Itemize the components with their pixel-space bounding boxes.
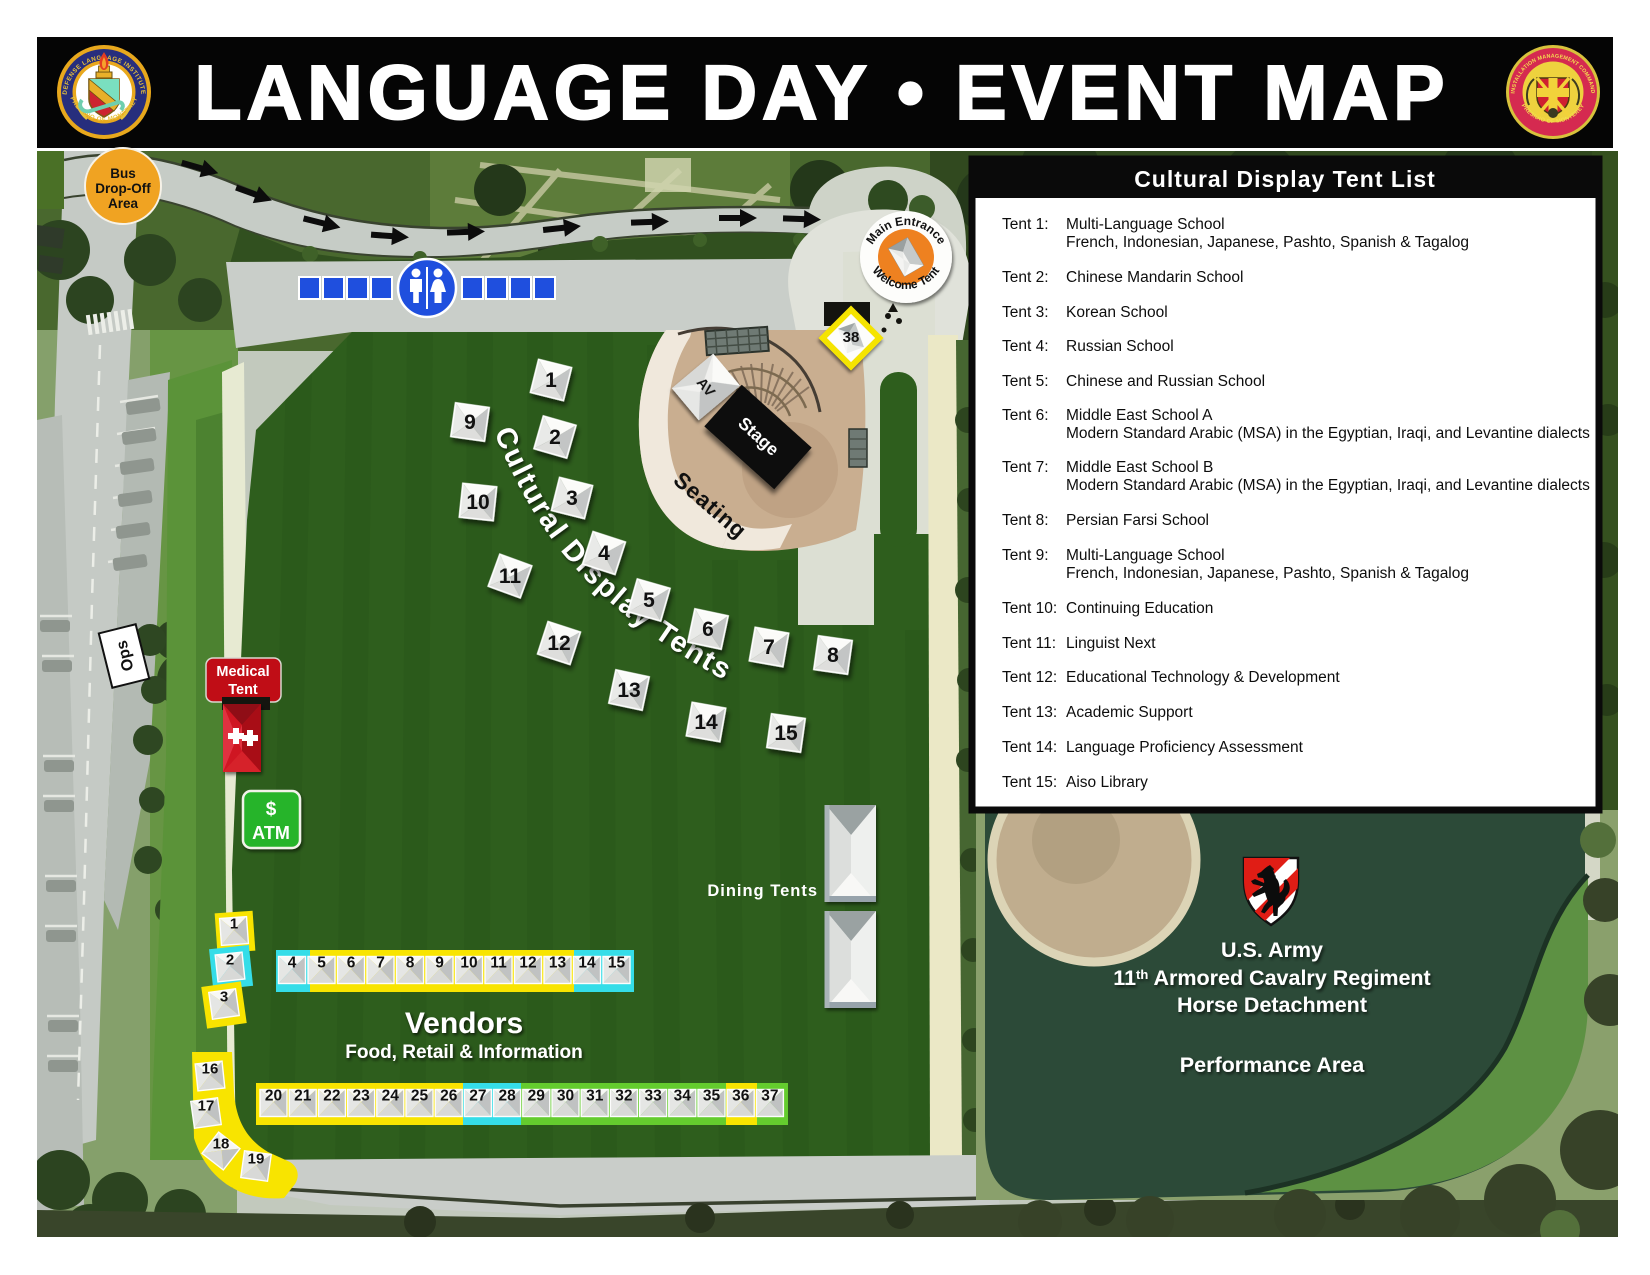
svg-text:2: 2	[226, 952, 234, 969]
svg-text:33: 33	[644, 1088, 662, 1105]
svg-text:13: 13	[617, 679, 640, 702]
svg-text:20: 20	[265, 1088, 282, 1105]
svg-text:Bus: Bus	[110, 166, 136, 181]
svg-text:ATM: ATM	[252, 823, 290, 843]
svg-text:Horse Detachment: Horse Detachment	[1177, 993, 1367, 1017]
svg-text:Chinese and Russian School: Chinese and Russian School	[1066, 373, 1265, 390]
svg-text:Tent 4:: Tent 4:	[1002, 338, 1049, 355]
svg-text:Cultural Display Tent List: Cultural Display Tent List	[1134, 166, 1436, 192]
svg-text:25: 25	[411, 1088, 429, 1105]
svg-text:Food, Retail & Information: Food, Retail & Information	[345, 1042, 583, 1063]
svg-text:Modern Standard Arabic (MSA) i: Modern Standard Arabic (MSA) in the Egyp…	[1066, 477, 1590, 494]
svg-text:14: 14	[578, 955, 596, 972]
svg-text:13: 13	[549, 955, 567, 972]
svg-text:38: 38	[843, 329, 860, 346]
svg-text:34: 34	[674, 1088, 692, 1105]
svg-text:15: 15	[774, 722, 798, 745]
svg-text:Drop-Off: Drop-Off	[95, 181, 151, 196]
svg-text:Tent 10:: Tent 10:	[1002, 600, 1057, 617]
svg-text:32: 32	[615, 1088, 632, 1105]
svg-text:8: 8	[406, 955, 415, 972]
svg-text:29: 29	[528, 1088, 546, 1105]
svg-text:26: 26	[440, 1088, 458, 1105]
svg-text:Educational Technology & Devel: Educational Technology & Development	[1066, 669, 1340, 686]
svg-text:Tent 12:: Tent 12:	[1002, 669, 1057, 686]
svg-text:18: 18	[213, 1136, 230, 1153]
svg-text:1: 1	[230, 916, 238, 933]
svg-text:35: 35	[703, 1088, 721, 1105]
svg-text:Language Proficiency Assessmen: Language Proficiency Assessment	[1066, 739, 1304, 756]
svg-text:Tent 11:: Tent 11:	[1002, 635, 1056, 652]
svg-text:LANGUAGE DAY • EVENT MAP: LANGUAGE DAY • EVENT MAP	[194, 50, 1449, 136]
svg-text:Tent 8:: Tent 8:	[1002, 512, 1049, 529]
svg-text:Multi-Language School: Multi-Language School	[1066, 216, 1225, 233]
svg-text:Tent 3:: Tent 3:	[1002, 304, 1049, 321]
svg-text:17: 17	[198, 1098, 215, 1115]
svg-text:Tent: Tent	[228, 682, 258, 698]
svg-text:11: 11	[499, 565, 522, 588]
svg-text:Chinese Mandarin School: Chinese Mandarin School	[1066, 269, 1244, 286]
svg-text:French, Indonesian, Japanese,: French, Indonesian, Japanese, Pashto, Sp…	[1066, 565, 1469, 582]
svg-text:Performance Area: Performance Area	[1180, 1053, 1365, 1077]
svg-text:8: 8	[827, 644, 839, 667]
svg-text:9: 9	[464, 411, 476, 434]
svg-text:24: 24	[382, 1088, 400, 1105]
svg-text:Middle East School B: Middle East School B	[1066, 459, 1213, 476]
svg-text:36: 36	[732, 1088, 750, 1105]
svg-text:3: 3	[220, 989, 228, 1006]
svg-text:14: 14	[694, 711, 718, 734]
svg-text:12: 12	[547, 632, 570, 655]
svg-text:Tent 2:: Tent 2:	[1002, 269, 1049, 286]
svg-text:28: 28	[498, 1088, 516, 1105]
svg-text:10: 10	[460, 955, 477, 972]
svg-text:Persian Farsi School: Persian Farsi School	[1066, 512, 1209, 529]
svg-text:5: 5	[643, 589, 655, 612]
svg-text:U.S. Army: U.S. Army	[1221, 938, 1323, 962]
svg-text:3: 3	[566, 487, 578, 510]
svg-text:15: 15	[608, 955, 626, 972]
svg-text:Tent 6:: Tent 6:	[1002, 407, 1049, 424]
svg-text:23: 23	[352, 1088, 370, 1105]
svg-text:Tent 13:: Tent 13:	[1002, 704, 1057, 721]
svg-text:Vendors: Vendors	[405, 1007, 523, 1040]
svg-text:1: 1	[545, 369, 557, 392]
svg-text:5: 5	[317, 955, 326, 972]
svg-text:19: 19	[248, 1151, 265, 1168]
svg-text:6: 6	[702, 618, 714, 641]
svg-text:Korean School: Korean School	[1066, 304, 1168, 321]
svg-text:11th Armored Cavalry Regiment: 11th Armored Cavalry Regiment	[1113, 966, 1430, 990]
svg-text:Modern Standard Arabic (MSA) i: Modern Standard Arabic (MSA) in the Egyp…	[1066, 425, 1590, 442]
svg-text:Aiso Library: Aiso Library	[1066, 774, 1148, 791]
svg-text:Middle East School A: Middle East School A	[1066, 407, 1213, 424]
svg-text:Tent 9:: Tent 9:	[1002, 547, 1049, 564]
svg-text:Tent 5:: Tent 5:	[1002, 373, 1049, 390]
svg-text:9: 9	[435, 955, 444, 972]
svg-text:27: 27	[469, 1088, 486, 1105]
svg-text:$: $	[266, 799, 277, 820]
svg-text:Tent 14:: Tent 14:	[1002, 739, 1057, 756]
svg-text:7: 7	[763, 636, 775, 659]
svg-text:16: 16	[202, 1061, 219, 1078]
svg-text:31: 31	[586, 1088, 604, 1105]
svg-text:Medical: Medical	[216, 664, 269, 680]
svg-text:Multi-Language School: Multi-Language School	[1066, 547, 1225, 564]
svg-text:22: 22	[323, 1088, 340, 1105]
svg-text:4: 4	[288, 955, 297, 972]
svg-text:30: 30	[557, 1088, 574, 1105]
svg-text:Tent 1:: Tent 1:	[1002, 216, 1049, 233]
svg-text:Tent 7:: Tent 7:	[1002, 459, 1049, 476]
svg-text:2: 2	[549, 426, 561, 449]
svg-text:10: 10	[466, 491, 489, 514]
svg-text:11: 11	[490, 955, 507, 972]
svg-text:4: 4	[598, 542, 610, 565]
svg-text:7: 7	[376, 955, 385, 972]
svg-text:French, Indonesian, Japanese,: French, Indonesian, Japanese, Pashto, Sp…	[1066, 234, 1469, 251]
svg-text:21: 21	[294, 1088, 312, 1105]
svg-text:37: 37	[761, 1088, 778, 1105]
svg-text:Continuing Education: Continuing Education	[1066, 600, 1213, 617]
svg-text:12: 12	[519, 955, 536, 972]
svg-text:Area: Area	[108, 196, 139, 211]
svg-text:Russian School: Russian School	[1066, 338, 1174, 355]
svg-text:Academic Support: Academic Support	[1066, 704, 1193, 721]
svg-text:Tent 15:: Tent 15:	[1002, 774, 1057, 791]
svg-text:6: 6	[347, 955, 356, 972]
svg-text:Linguist Next: Linguist Next	[1066, 635, 1156, 652]
svg-text:Dining Tents: Dining Tents	[707, 882, 818, 900]
